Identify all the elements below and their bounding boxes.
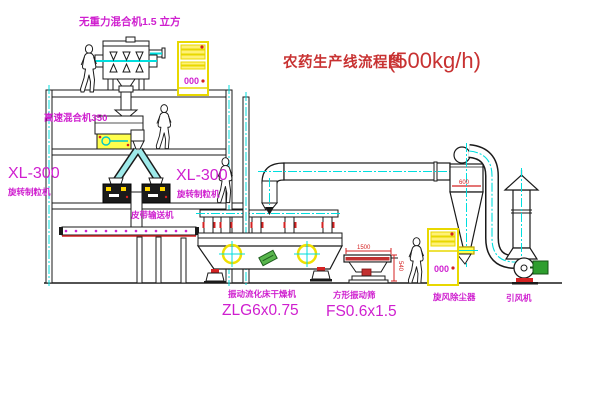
label-granulator-right-name: 旋转制粒机 — [176, 189, 220, 199]
person-floor2-icon — [156, 105, 171, 149]
exhaust-duct — [258, 162, 452, 215]
control-cabinet-right: 000 — [428, 229, 458, 285]
process-flow-diagram: 000 — [0, 0, 600, 403]
diagram-title: 农药生产线流程图 — [282, 53, 403, 71]
induced-draft-fan — [512, 258, 548, 285]
label-gravity-mixer: 无重力混合机1.5 立方 — [78, 15, 181, 28]
dim-cyclone-diameter: 600 — [459, 180, 470, 186]
label-high-speed-mixer: 高速混合机350 — [44, 112, 107, 124]
diagram-canvas: 000 — [0, 0, 600, 403]
label-screen-model: FS0.6x1.5 — [326, 303, 397, 320]
label-dryer-name: 振动流化床干燥机 — [228, 289, 297, 299]
diagram-capacity: (500kg/h) — [388, 48, 481, 73]
control-cabinet-top: 000 — [178, 42, 208, 95]
label-screen-name: 方形振动筛 — [333, 290, 376, 300]
vibrating-screen — [344, 248, 398, 283]
fluid-bed-dryer — [198, 233, 342, 284]
label-granulator-left-name: 旋转制粒机 — [7, 187, 51, 197]
granulator-left — [103, 184, 131, 203]
cabinet-top-display: 000 — [184, 76, 199, 86]
dim-screen-length: 1500 — [357, 245, 371, 251]
exhaust-stack — [505, 168, 538, 262]
belt-conveyor — [59, 227, 199, 283]
label-granulator-left-model: XL-300 — [8, 165, 60, 182]
label-belt-conveyor: 皮带输送机 — [130, 210, 174, 220]
person-ground-icon — [408, 238, 423, 283]
conveyor-support-columns — [137, 237, 186, 283]
label-cyclone: 旋风除尘器 — [432, 292, 476, 302]
label-granulator-right-model: XL-300 — [176, 167, 228, 184]
label-dryer-model: ZLG6x0.75 — [222, 302, 299, 319]
gravity-free-mixer — [95, 37, 165, 92]
label-induced-fan: 引风机 — [506, 293, 532, 303]
person-roof-icon — [81, 45, 97, 92]
dim-screen-height: 540 — [397, 261, 403, 272]
granulator-right — [142, 184, 170, 203]
floor-slab-3 — [46, 203, 249, 209]
cabinet-right-display: 000 — [434, 264, 449, 274]
